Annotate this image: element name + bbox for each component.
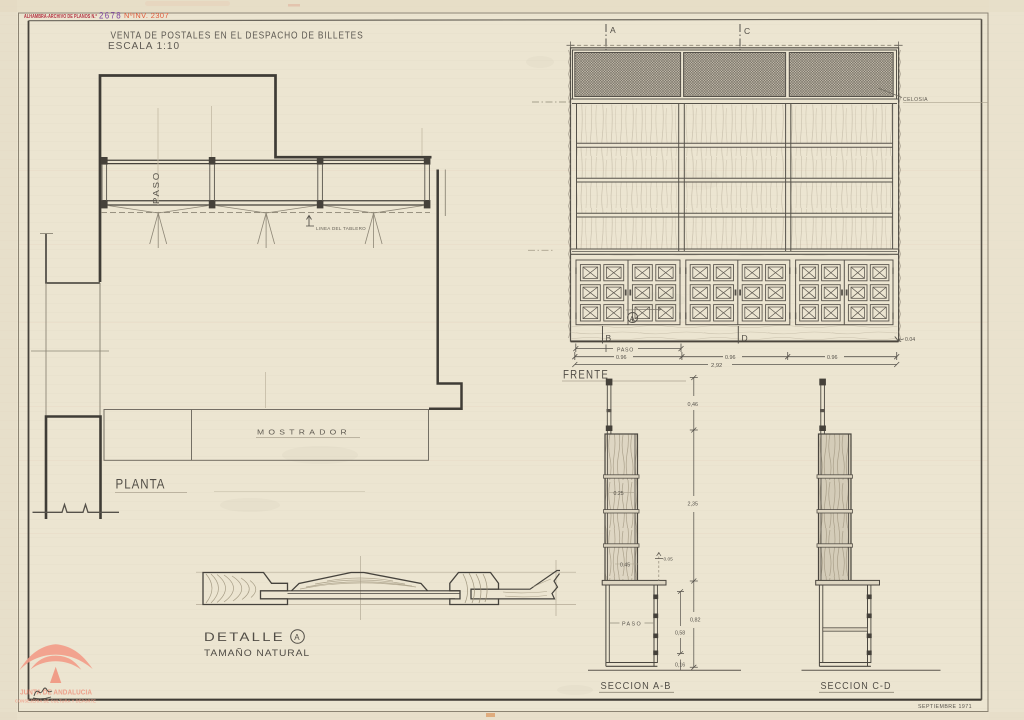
svg-text:TAMAÑO NATURAL: TAMAÑO NATURAL	[204, 648, 310, 658]
svg-text:CELOSIA: CELOSIA	[903, 97, 928, 103]
svg-text:PLANTA: PLANTA	[116, 477, 166, 492]
svg-text:DETALLE: DETALLE	[204, 632, 285, 644]
svg-text:SECCION A-B: SECCION A-B	[601, 680, 672, 692]
svg-text:PASO: PASO	[617, 347, 634, 353]
svg-text:0.96: 0.96	[725, 355, 736, 361]
svg-text:ALHAMBRA-ARCHIVO DE PLANOS N.º: ALHAMBRA-ARCHIVO DE PLANOS N.º	[24, 14, 97, 20]
svg-text:2,92: 2,92	[711, 363, 722, 369]
svg-text:0.45: 0.45	[620, 563, 630, 569]
svg-text:0,16: 0,16	[675, 663, 685, 669]
svg-text:0,82: 0,82	[690, 618, 701, 624]
svg-text:2,35: 2,35	[688, 502, 699, 508]
svg-text:JUNTA DE ANDALUCIA: JUNTA DE ANDALUCIA	[20, 687, 92, 696]
svg-text:NºINV. 2307: NºINV. 2307	[124, 13, 169, 20]
svg-text:PASO: PASO	[622, 621, 642, 627]
svg-text:0.25: 0.25	[614, 491, 624, 497]
svg-text:MOSTRADOR: MOSTRADOR	[257, 430, 351, 437]
svg-text:D: D	[742, 333, 748, 343]
svg-text:SEPTIEMBRE 1971: SEPTIEMBRE 1971	[918, 704, 972, 710]
svg-text:0,46: 0,46	[688, 402, 699, 408]
svg-text:FRENTE: FRENTE	[563, 367, 609, 381]
svg-text:PASO: PASO	[151, 171, 161, 204]
svg-text:B: B	[606, 333, 612, 343]
svg-text:SECCION C-D: SECCION C-D	[821, 680, 892, 692]
svg-text:0.96: 0.96	[827, 355, 838, 361]
svg-text:0.05: 0.05	[664, 557, 674, 563]
svg-text:A: A	[610, 25, 616, 35]
svg-text:LINEA DEL TABLERO: LINEA DEL TABLERO	[316, 226, 366, 231]
svg-text:CONSEJERIA DE CULTURA Y DEPORT: CONSEJERIA DE CULTURA Y DEPORTE	[15, 699, 96, 704]
svg-text:0.96: 0.96	[616, 355, 627, 361]
svg-text:ESCALA 1:10: ESCALA 1:10	[108, 40, 180, 52]
svg-text:A: A	[630, 314, 635, 323]
svg-text:0,58: 0,58	[675, 631, 685, 637]
svg-text:A: A	[294, 633, 300, 642]
svg-text:0.04: 0.04	[905, 337, 915, 343]
svg-text:2678: 2678	[99, 11, 122, 21]
svg-text:C: C	[744, 26, 750, 36]
